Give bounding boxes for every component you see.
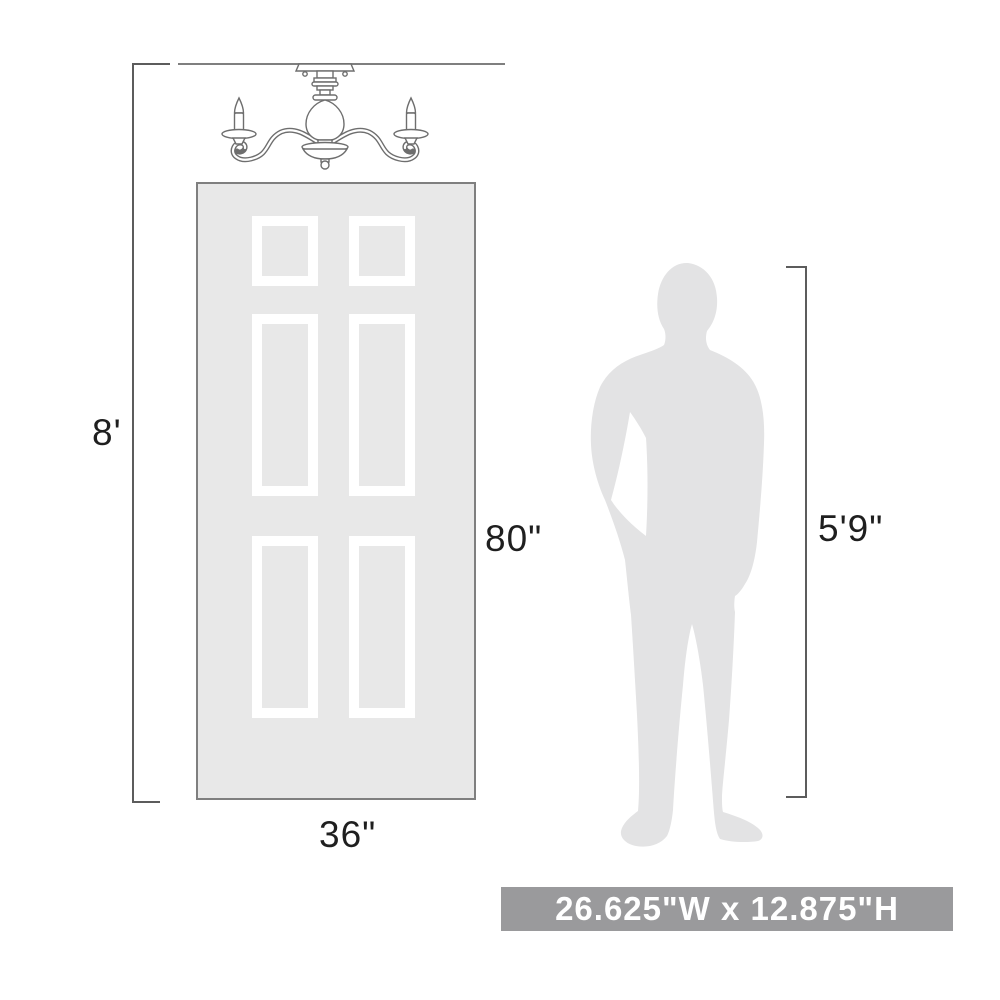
person-silhouette [588,260,772,850]
ceiling-height-bottom-tick [132,801,160,803]
light-fixture-illustration [205,60,445,172]
left-candle-bobeche [222,130,256,139]
door-width-label: 36" [319,814,376,856]
product-size-banner: 26.625"W x 12.875"H [501,887,953,931]
ceiling-height-label: 8' [92,412,122,454]
person-body-shape [591,263,764,847]
stem-neck [320,90,330,95]
door-panel-middle-right [349,314,415,496]
canopy-screw-right [343,72,347,76]
door-height-label: 80" [485,518,542,560]
right-candle-flame-tip [407,98,416,113]
finial-ball [321,161,329,169]
person-height-label: 5'9" [818,508,883,550]
left-candle-cup [233,138,245,144]
person-height-dimension-line [805,266,807,798]
door-panel-bottom-left [252,536,318,718]
center-bowl [303,149,347,159]
door-panel-top-left [252,216,318,286]
stem-block [317,71,333,78]
product-size-text: 26.625"W x 12.875"H [555,890,899,928]
ceiling-height-top-tick [132,63,170,65]
right-candle-cup [405,138,417,144]
door-illustration [196,182,476,800]
scale-diagram: 8' [0,0,1000,1000]
baluster [306,100,344,140]
door-panel-top-right [349,216,415,286]
right-candle-body [407,113,416,131]
canopy-screw-left [303,72,307,76]
ceiling-canopy [296,64,354,71]
person-height-bottom-tick [786,796,807,798]
door-panel-bottom-right [349,536,415,718]
ceiling-height-dimension-line [132,63,134,803]
right-candle-bobeche [394,130,428,139]
left-candle-flame-tip [235,98,244,113]
door-panel-middle-left [252,314,318,496]
person-height-top-tick [786,266,807,268]
stem-ring-3 [313,95,337,100]
left-candle-body [235,113,244,131]
